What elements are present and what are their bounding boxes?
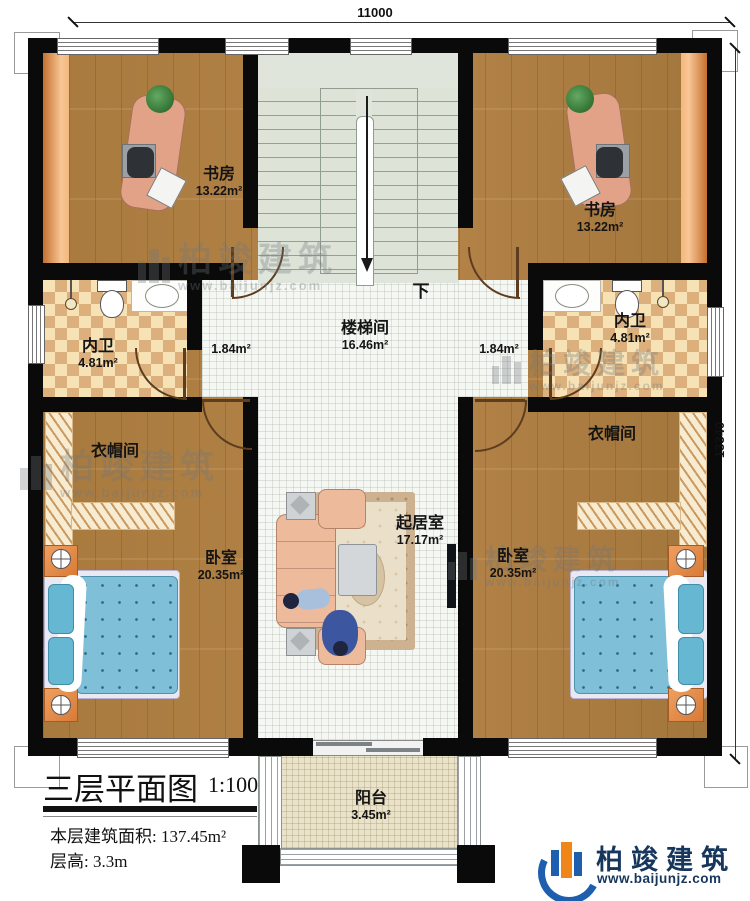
- room-label-stairwell: 楼梯间 16.46m²: [315, 320, 415, 352]
- brand-url: www.baijunjz.com: [597, 871, 722, 886]
- title-rule: [43, 806, 257, 812]
- door-leaf: [202, 399, 250, 402]
- shower-cord: [70, 280, 72, 300]
- clothes-rack: [577, 502, 681, 530]
- floor-height-value: 3.3m: [93, 852, 127, 871]
- watermark-name: 柏竣建筑: [529, 350, 665, 378]
- study-right-cabinet: [681, 53, 707, 263]
- window: [707, 307, 724, 377]
- room-label-cloak-left: 衣帽间: [75, 443, 155, 461]
- window: [28, 305, 45, 364]
- balcony-post: [457, 845, 495, 883]
- watermark-url: www.baijunjz.com: [529, 378, 665, 395]
- window: [77, 738, 229, 758]
- dimension-right-value: 13340: [712, 410, 728, 470]
- dimension-top-value: 11000: [330, 5, 420, 20]
- armchair: [318, 489, 366, 529]
- lamp-icon: [676, 549, 696, 569]
- floor-height-line: 层高: 3.3m: [50, 847, 127, 872]
- watermark-logo-icon: [20, 456, 52, 490]
- watermark-logo-icon: [138, 249, 170, 283]
- stair-down-arrow: [361, 258, 373, 272]
- window: [57, 38, 159, 55]
- wall-segment: [655, 738, 722, 756]
- window: [225, 38, 289, 55]
- plan-scale: 1:100: [208, 772, 258, 798]
- pillow: [678, 584, 704, 634]
- bed-blanket: [574, 576, 676, 694]
- wall-segment: [287, 38, 350, 53]
- watermark-url: www.baijunjz.com: [60, 484, 220, 502]
- wall-segment: [410, 38, 508, 53]
- plant-icon: [146, 85, 174, 113]
- toilet-bowl-icon: [100, 290, 124, 318]
- brand-logo-icon: [574, 852, 582, 876]
- stair-direction-line: [366, 96, 368, 260]
- floor-area-value: 137.45m²: [161, 827, 226, 846]
- person-head: [333, 641, 348, 656]
- wall-segment: [528, 280, 543, 350]
- floor-height-label: 层高:: [50, 852, 89, 871]
- lamp-icon: [51, 695, 71, 715]
- room-label-balcony: 阳台 3.45m²: [321, 790, 421, 822]
- door-leaf: [516, 247, 519, 297]
- bed-blanket: [76, 576, 178, 694]
- balcony-railing: [258, 756, 282, 850]
- title-rule: [43, 816, 257, 817]
- wall-segment: [458, 53, 473, 228]
- dimension-line-top: [73, 22, 730, 23]
- wall-segment: [157, 38, 225, 53]
- door-leaf: [183, 348, 186, 398]
- wall-segment: [243, 53, 258, 228]
- window: [508, 38, 657, 55]
- clothes-rack: [71, 502, 175, 530]
- area-label-corridor-left: 1.84m²: [196, 342, 266, 356]
- stair-down-label: 下: [406, 282, 436, 301]
- wall-segment: [528, 263, 722, 280]
- floor-drain-icon: [65, 298, 77, 310]
- dimension-line-right: [735, 48, 736, 760]
- watermark-url: www.baijunjz.com: [178, 277, 338, 295]
- pillow: [48, 637, 74, 685]
- office-chair-icon: [127, 147, 154, 178]
- room-label-bedroom-right: 卧室 20.35m²: [463, 548, 563, 580]
- wall-segment: [28, 397, 202, 412]
- plant-icon: [566, 85, 594, 113]
- floor-area-label: 本层建筑面积:: [50, 827, 157, 846]
- watermark-name: 柏竣建筑: [178, 243, 338, 277]
- window: [350, 38, 412, 55]
- coffee-table: [338, 544, 377, 596]
- wall-segment: [28, 362, 43, 756]
- sofa: [276, 514, 336, 628]
- room-label-living: 起居室 17.17m²: [370, 515, 470, 547]
- balcony-railing: [457, 756, 481, 850]
- plan-title: 三层平面图: [43, 764, 198, 809]
- pillow: [48, 584, 74, 634]
- corridor-left-floor: [202, 280, 258, 397]
- office-chair-icon: [596, 147, 623, 178]
- room-label-study-right: 书房 13.22m²: [550, 202, 650, 234]
- window: [508, 738, 657, 758]
- area-label-corridor-right: 1.84m²: [464, 342, 534, 356]
- sliding-door-leaf: [316, 742, 372, 746]
- wall-segment: [227, 738, 313, 756]
- watermark: 柏竣建筑 www.baijunjz.com: [492, 350, 665, 395]
- balcony-post: [242, 845, 280, 883]
- room-label-bedroom-left: 卧室 20.35m²: [171, 550, 271, 582]
- brand-logo-icon: [551, 850, 559, 876]
- pillow: [678, 637, 704, 685]
- balcony-railing: [280, 848, 459, 866]
- floor-plan-canvas: 柏竣建筑 www.baijunjz.com 柏竣建筑 www.baijunjz.…: [0, 0, 750, 901]
- floor-drain-icon: [657, 296, 669, 308]
- sliding-door-leaf: [366, 748, 420, 752]
- watermark: 柏竣建筑 www.baijunjz.com: [138, 243, 338, 295]
- floor-area-line: 本层建筑面积: 137.45m²: [50, 822, 226, 847]
- person-head: [283, 593, 299, 609]
- wall-segment: [28, 738, 77, 756]
- lamp-icon: [676, 695, 696, 715]
- watermark-logo-icon: [492, 356, 521, 384]
- room-label-bath-right: 内卫 4.81m²: [590, 313, 670, 345]
- room-label-study-left: 书房 13.22m²: [169, 166, 269, 198]
- room-label-bath-left: 内卫 4.81m²: [58, 338, 138, 370]
- brand-logo-icon: [561, 842, 572, 878]
- sink-basin-icon: [555, 284, 589, 308]
- lamp-icon: [51, 549, 71, 569]
- study-left-cabinet: [43, 53, 69, 263]
- door-leaf: [475, 399, 525, 402]
- clothes-rack: [679, 412, 707, 547]
- wall-segment: [423, 738, 508, 756]
- room-label-cloak-right: 衣帽间: [572, 426, 652, 444]
